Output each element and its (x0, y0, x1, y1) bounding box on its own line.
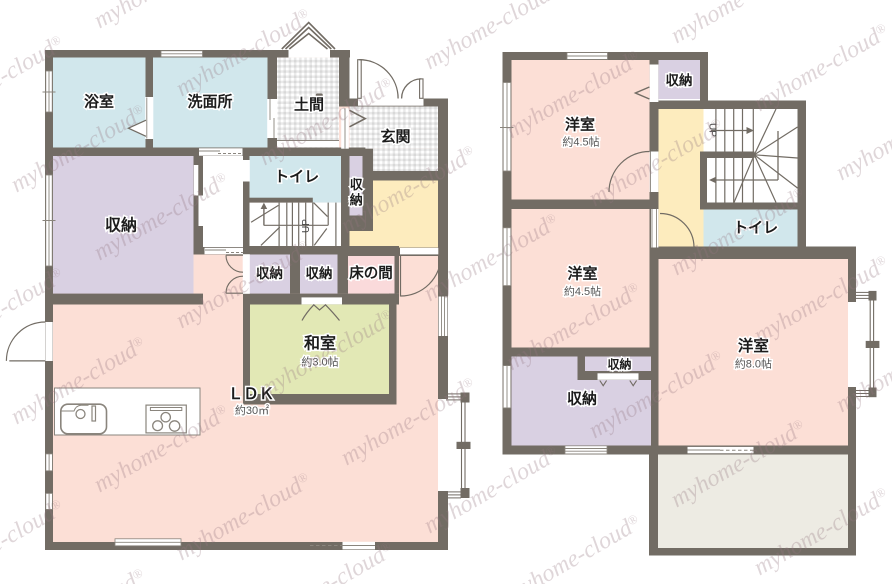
svg-text:玄関: 玄関 (380, 128, 410, 146)
svg-text:myhome-cloud®: myhome-cloud® (750, 19, 892, 117)
svg-text:myhome-cloud®: myhome-cloud® (832, 88, 892, 186)
svg-text:洋室: 洋室 (567, 265, 597, 283)
svg-text:約30㎡: 約30㎡ (235, 403, 269, 417)
svg-text:myhome-cloud®: myhome-cloud® (502, 510, 646, 584)
svg-text:UP: UP (301, 219, 312, 233)
svg-text:収納: 収納 (607, 357, 631, 372)
svg-text:床の間: 床の間 (349, 264, 393, 282)
svg-text:浴室: 浴室 (84, 93, 114, 111)
svg-text:約4.5帖: 約4.5帖 (562, 135, 599, 149)
svg-text:トイレ: トイレ (274, 169, 319, 186)
svg-text:収納: 収納 (306, 265, 333, 281)
svg-text:myhome-cloud®: myhome-cloud® (667, 0, 811, 49)
svg-text:収: 収 (350, 177, 364, 192)
svg-text:myhome-cloud®: myhome-cloud® (7, 564, 151, 584)
svg-text:洋室: 洋室 (565, 116, 595, 134)
svg-text:約4.5帖: 約4.5帖 (564, 284, 601, 298)
svg-text:収納: 収納 (567, 390, 597, 408)
svg-text:myhome-cloud®: myhome-cloud® (90, 0, 234, 34)
svg-text:収納: 収納 (666, 72, 693, 88)
svg-text:約8.0帖: 約8.0帖 (735, 357, 772, 371)
